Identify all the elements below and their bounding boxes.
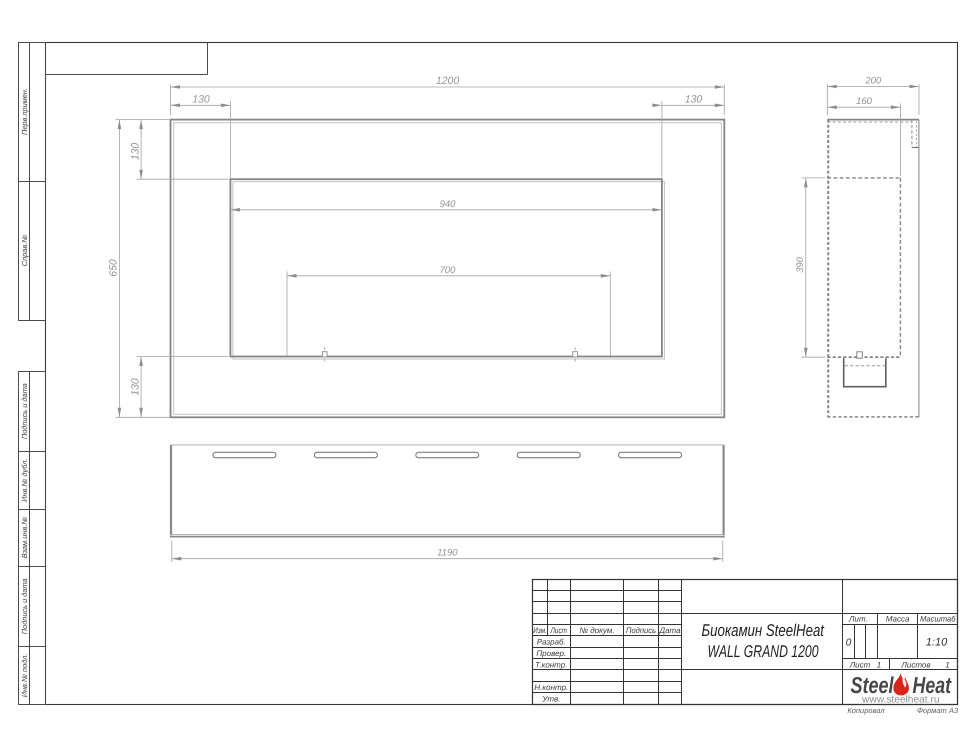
svg-text:Лит.: Лит. [848,615,868,624]
svg-text:№ докум.: № докум. [579,626,614,635]
svg-text:Справ.№: Справ.№ [20,235,29,267]
svg-text:Н.контр.: Н.контр. [534,683,568,692]
svg-text:Лист: Лист [550,626,568,635]
svg-text:Дата: Дата [658,626,681,635]
svg-text:Листов: Листов [900,660,930,669]
svg-text:130: 130 [192,94,210,106]
svg-text:Копировал: Копировал [847,706,885,715]
svg-text:1:10: 1:10 [926,637,948,649]
svg-text:Биокамин SteelHeat: Биокамин SteelHeat [702,621,825,640]
svg-text:700: 700 [440,265,457,276]
svg-text:Масса: Масса [886,615,910,624]
svg-text:1: 1 [945,660,949,669]
svg-text:0: 0 [846,638,852,649]
svg-text:Инв.№ дубл.: Инв.№ дубл. [20,458,29,501]
svg-text:Изм.: Изм. [533,626,547,635]
svg-text:Подпись: Подпись [626,626,656,635]
svg-text:Утв.: Утв. [541,695,560,704]
svg-text:Взам.инв.№: Взам.инв.№ [20,517,29,559]
svg-text:160: 160 [856,96,873,107]
svg-text:Подпись и дата: Подпись и дата [20,578,29,634]
svg-text:940: 940 [440,199,457,210]
svg-text:Подпись и дата: Подпись и дата [20,383,29,439]
svg-text:Перв.примен.: Перв.примен. [20,88,29,135]
svg-text:130: 130 [685,94,703,106]
svg-text:Разраб.: Разраб. [537,638,566,647]
svg-text:1190: 1190 [437,548,458,559]
svg-text:www.steelheat.ru: www.steelheat.ru [861,695,940,706]
svg-text:390: 390 [795,256,806,273]
svg-text:Лист: Лист [849,660,871,669]
svg-text:Формат А3: Формат А3 [917,706,959,715]
svg-text:Провер.: Провер. [536,649,566,658]
svg-text:Инв.№ подл.: Инв.№ подл. [20,653,29,697]
svg-text:200: 200 [864,76,882,87]
svg-text:Масштаб: Масштаб [920,615,956,624]
svg-text:WALL GRAND 1200: WALL GRAND 1200 [708,642,819,661]
svg-text:130: 130 [129,143,141,161]
svg-text:650: 650 [108,259,120,277]
svg-text:Т.контр.: Т.контр. [535,660,567,669]
svg-text:1: 1 [877,660,881,669]
svg-text:1200: 1200 [436,75,460,87]
svg-text:130: 130 [129,378,141,396]
